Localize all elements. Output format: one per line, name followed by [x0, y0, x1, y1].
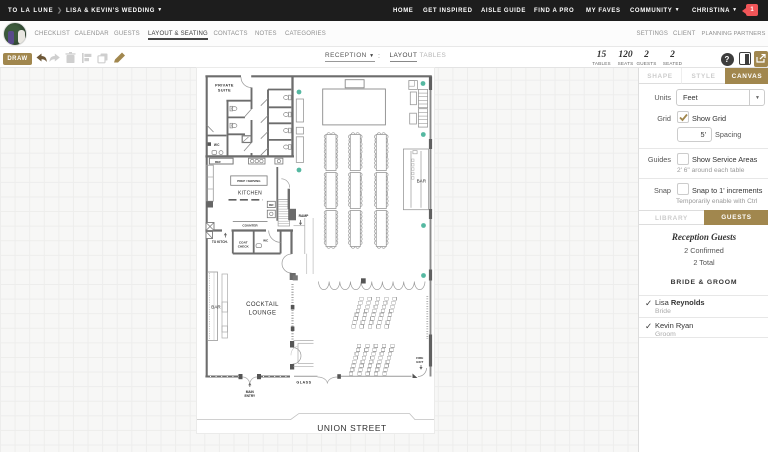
svg-text:EXIT: EXIT — [416, 360, 423, 364]
svg-text:PRIVATE: PRIVATE — [215, 84, 234, 88]
svg-text:WC: WC — [263, 238, 269, 242]
svg-text:BAR: BAR — [417, 179, 427, 184]
svg-text:RAMP: RAMP — [299, 214, 310, 218]
svg-text:WC: WC — [214, 143, 220, 147]
svg-text:BAR: BAR — [211, 305, 221, 310]
svg-text:COCKTAIL: COCKTAIL — [246, 302, 279, 308]
svg-text:PREP / SERVING: PREP / SERVING — [237, 179, 261, 183]
svg-text:REF: REF — [215, 160, 221, 164]
svg-text:SUITE: SUITE — [218, 89, 231, 93]
svg-text:UNION STREET: UNION STREET — [317, 423, 387, 433]
svg-text:REF: REF — [269, 204, 274, 207]
svg-text:KITCHEN: KITCHEN — [238, 190, 262, 196]
svg-text:COUNTER: COUNTER — [242, 223, 258, 227]
svg-text:CHECK: CHECK — [238, 245, 250, 249]
svg-text:TO KITCH.: TO KITCH. — [212, 240, 228, 244]
svg-text:ENTRY: ENTRY — [244, 394, 256, 398]
svg-text:LOUNGE: LOUNGE — [249, 310, 277, 316]
svg-text:GLASS: GLASS — [296, 380, 311, 384]
